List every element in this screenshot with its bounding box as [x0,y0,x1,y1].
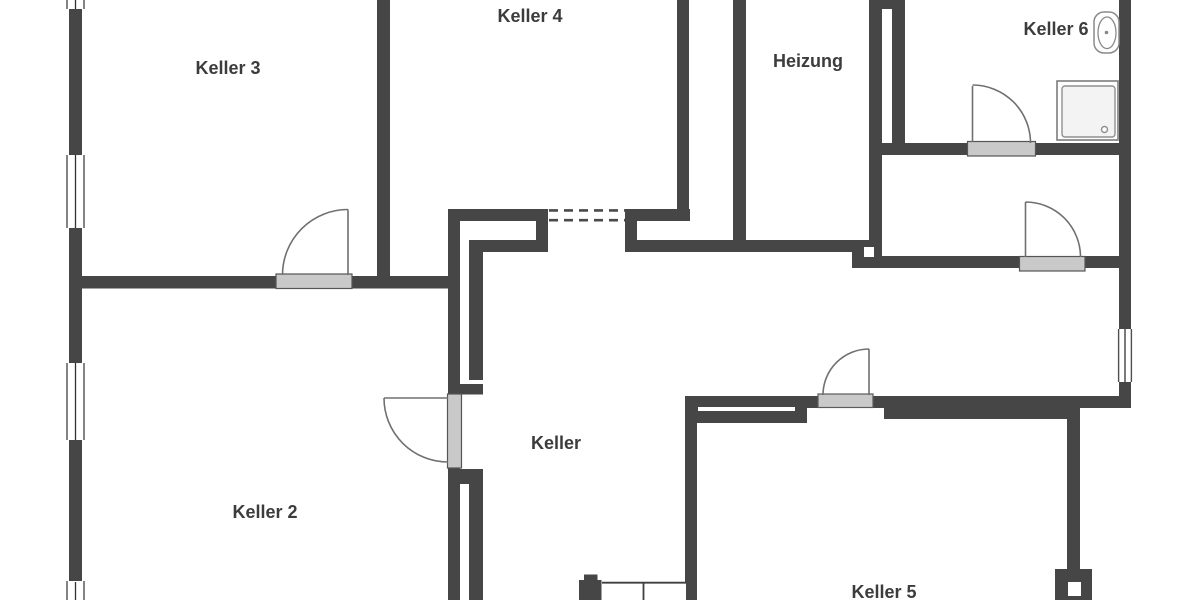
svg-text:Keller 4: Keller 4 [497,6,562,26]
svg-text:Heizung: Heizung [773,51,843,71]
svg-text:Keller 3: Keller 3 [195,58,260,78]
svg-text:Keller 5: Keller 5 [851,582,916,600]
svg-text:Keller: Keller [531,433,581,453]
svg-text:Keller 2: Keller 2 [232,502,297,522]
svg-text:Keller 6: Keller 6 [1023,19,1088,39]
